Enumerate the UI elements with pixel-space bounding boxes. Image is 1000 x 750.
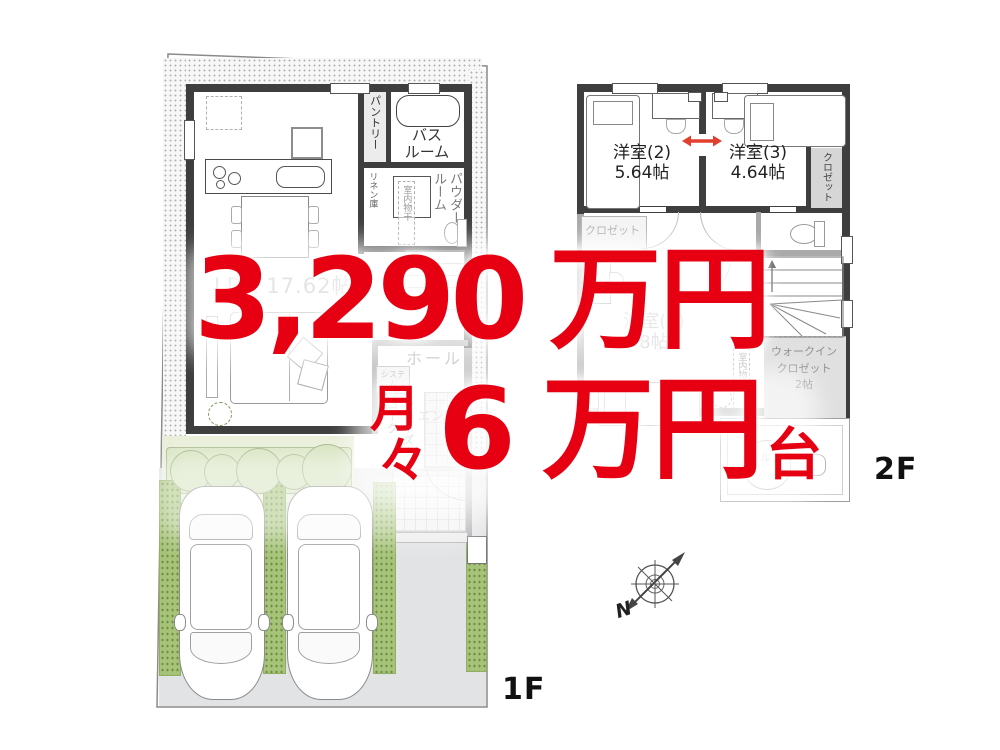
ac-unit-icon — [688, 92, 702, 102]
car-mirror — [282, 614, 294, 631]
door-opening — [770, 207, 796, 212]
plant-icon — [208, 402, 232, 426]
bathroom-label-line1: バス — [391, 127, 463, 144]
bedroom3-size: 4.64帖 — [720, 164, 796, 184]
closet-right-label: クロゼット — [820, 152, 832, 206]
car-mirror — [258, 614, 270, 631]
wall — [577, 84, 584, 214]
gravel-band-top — [172, 58, 482, 85]
stove-burner-icon — [228, 172, 241, 185]
wall — [699, 156, 706, 208]
window-icon — [184, 120, 195, 160]
bed-icon — [744, 95, 846, 147]
wall — [186, 426, 378, 434]
floorplan-advert: パントリー バス ルーム リネン庫 室内物干 パウダールーム LDK 17.62… — [0, 0, 1000, 750]
ac-unit-icon — [714, 92, 728, 102]
stove-burner-icon — [216, 180, 225, 189]
bedroom3-label: 洋室(3) 4.64帖 — [720, 144, 796, 183]
fridge-icon — [206, 96, 242, 130]
monthly-suffix: 台 — [766, 428, 822, 484]
pillow-icon — [750, 103, 774, 141]
bathtub-icon — [396, 95, 460, 127]
bedroom2-name: 洋室(2) — [604, 144, 680, 164]
floor2-label: 2F — [874, 452, 917, 487]
price-text: 3,290万円 — [194, 244, 769, 356]
sink-icon — [276, 166, 325, 188]
red-arrow-icon — [682, 132, 722, 150]
car-windshield — [190, 632, 252, 664]
stove-burner-icon — [213, 166, 226, 179]
pillow-icon — [593, 101, 633, 125]
wic-line1: ウォークイン — [760, 344, 848, 361]
linen-label: リネン庫 — [367, 172, 377, 242]
car-mirror — [174, 614, 186, 631]
stairs-icon — [760, 256, 844, 338]
bedroom3-name: 洋室(3) — [720, 144, 796, 164]
bedroom2-label: 洋室(2) 5.64帖 — [604, 144, 680, 183]
pantry-label: パントリー — [368, 95, 381, 163]
car-roof — [190, 544, 252, 630]
monthly-char2: 々 — [378, 436, 428, 486]
chair-icon — [308, 206, 319, 224]
car-mirror — [366, 614, 378, 631]
powder-room-label: パウダールーム — [430, 172, 462, 234]
monthly-char1: 月 — [370, 384, 428, 434]
car-roof — [298, 544, 360, 630]
window-icon — [408, 83, 440, 94]
floor1-label: 1F — [502, 672, 545, 707]
monthly-label: 月 々 — [370, 384, 428, 486]
bathroom-label-line2: ルーム — [391, 144, 463, 161]
chair-icon — [231, 206, 242, 224]
price-unit: 万円 — [549, 235, 769, 365]
window-icon — [330, 83, 370, 94]
toilet-tank-icon — [814, 221, 825, 247]
price-value: 3,290 — [194, 235, 523, 365]
monthly-price-text: 月 々 6 万円 台 — [370, 374, 822, 486]
utility-box-icon — [467, 536, 487, 564]
bedroom2-size: 5.64帖 — [604, 164, 680, 184]
bathroom-label: バス ルーム — [391, 127, 463, 162]
monthly-unit: 万円 — [542, 374, 762, 486]
gravel-band-left — [163, 58, 186, 470]
kitchen-island-icon — [291, 127, 323, 159]
kitchen-counter-icon — [205, 159, 332, 194]
car-windshield — [298, 632, 360, 664]
monthly-value: 6 — [438, 374, 516, 486]
